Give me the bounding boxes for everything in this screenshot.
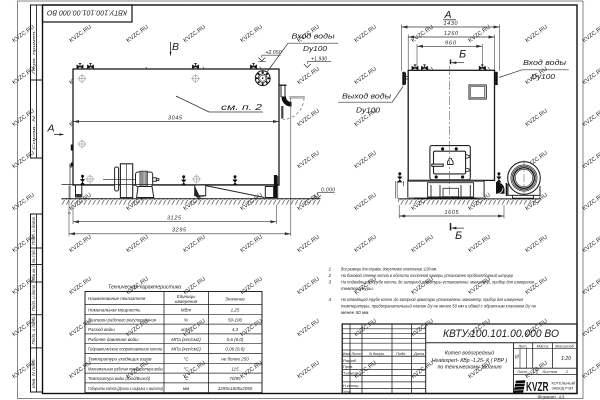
svg-text:Подп. и дата: Подп. и дата [31,284,36,311]
svg-text:Heatexpert- КВр -1,25- К ( РВР: Heatexpert- КВр -1,25- К ( РВР ) [432,358,508,364]
svg-text:На отводящей трубе котла ,до з: На отводящей трубе котла ,до запорной ар… [341,296,523,302]
svg-text:°С: °С [183,376,189,381]
svg-text:А3: А3 [558,395,565,400]
svg-text:Разраб.: Разраб. [343,358,357,363]
svg-text:На подводящей трубе котла, до: На подводящей трубе котла, до запорной а… [341,279,534,285]
svg-text:Утв.: Утв. [343,389,352,394]
svg-text:Подп.: Подп. [396,351,406,356]
svg-text:температуры, предохранительный: температуры, предохранительный клапан Dу… [341,303,536,309]
svg-text:Котел водогрейный: Котел водогрейный [445,350,494,357]
svg-text:Температура уходящих газов: Температура уходящих газов [88,357,152,362]
svg-text:КВТУ.100.101.00.000 ВО: КВТУ.100.101.00.000 ВО [443,328,559,340]
svg-text:3295: 3295 [172,227,187,233]
svg-text:Инв. N подл.: Инв. N подл. [31,358,36,388]
svg-text:3045: 3045 [168,116,183,122]
svg-text:50-100: 50-100 [228,317,243,322]
svg-text:0,06 (0,6): 0,06 (0,6) [225,347,245,352]
svg-text:МВт: МВт [181,308,192,313]
svg-text:И: И [515,355,519,361]
svg-text:1,25: 1,25 [231,308,240,313]
svg-text:Dy100: Dy100 [303,46,327,53]
svg-text:0,6 (6,0): 0,6 (6,0) [227,337,244,342]
svg-text:%: % [184,317,188,322]
svg-text:м3/ч: м3/ч [181,327,191,332]
svg-text:см. п. 2: см. п. 2 [221,103,263,112]
svg-text:Т.контр.: Т.контр. [343,370,359,375]
svg-text:В: В [172,41,179,53]
svg-text:Перв. примен.: Перв. примен. [31,30,36,74]
svg-text:мм: мм [183,386,189,391]
svg-text:Значение: Значение [225,297,245,302]
svg-text:Все размеры для справок, допус: Все размеры для справок, допустимое откл… [341,267,437,272]
svg-text:Дата: Дата [413,351,425,356]
svg-text:3295х1605х2050: 3295х1605х2050 [218,386,253,391]
svg-text:Лист: Лист [351,351,363,356]
svg-text:°С: °С [183,366,189,371]
svg-text:4,3: 4,3 [232,327,239,332]
svg-text:А: А [444,9,452,21]
svg-text:70/95: 70/95 [229,376,241,381]
svg-text:Изм.: Изм. [343,351,351,356]
svg-text:1: 1 [329,267,332,272]
svg-text:Б: Б [455,230,462,242]
svg-text:Лист: Лист [516,369,528,374]
svg-text:3125: 3125 [167,215,182,221]
svg-text:А: А [47,123,55,135]
svg-text:1:20: 1:20 [561,356,571,362]
svg-text:измерения: измерения [175,299,198,304]
svg-text:МПа (кгс/см2): МПа (кгс/см2) [171,347,201,352]
svg-text:Техническая характеристика: Техническая характеристика [108,285,181,291]
svg-text:KVZR: KVZR [526,380,549,394]
svg-text:960: 960 [445,40,456,46]
svg-text:4: 4 [329,297,332,302]
svg-text:менее 50 мм.: менее 50 мм. [341,310,370,315]
svg-text:Наименование показателя: Наименование показателя [88,296,146,301]
svg-text:Подп. и дата: Подп. и дата [31,216,36,245]
svg-text:Масса: Масса [537,343,550,348]
svg-text:температуры.: температуры. [341,286,374,291]
svg-text:Вход воды: Вход воды [292,33,336,41]
svg-text:МПа (кгс/см2): МПа (кгс/см2) [171,337,201,342]
svg-text:Dy100: Dy100 [356,108,380,115]
svg-text:Расход воды: Расход воды [88,327,115,332]
svg-text:115: 115 [231,366,239,371]
svg-text:КВТУ.100.101.00.000 ВО: КВТУ.100.101.00.000 ВО [47,9,127,18]
svg-text:Лит.: Лит. [517,343,527,348]
svg-text:Номинальная мощность: Номинальная мощность [88,308,141,313]
svg-text:Dy100: Dy100 [531,74,555,81]
svg-text:Масштаб: Масштаб [555,343,574,348]
svg-text:Температура воды (Вход/Выход): Температура воды (Вход/Выход) [88,376,150,381]
svg-text:не более 250: не более 250 [221,357,249,362]
svg-text:Б: Б [459,49,466,61]
svg-text:ЗАВОД РЭП: ЗАВОД РЭП [552,387,574,391]
svg-text:Пров.: Пров. [343,364,353,369]
svg-text:Вход воды: Вход воды [523,59,567,67]
svg-text:Гидравлическое сопротивление к: Гидравлическое сопротивление котла [88,347,162,352]
svg-text:2: 2 [328,273,332,278]
svg-text:Рабочее давление воды: Рабочее давление воды [88,337,139,342]
svg-text:N докум.: N докум. [369,351,385,356]
svg-text:Выход воды: Выход воды [342,93,392,101]
svg-text:КОТЕЛЬНЫЙ: КОТЕЛЬНЫЙ [552,382,576,386]
svg-text:На боковой стенке котла в обла: На боковой стенке котла в области топочн… [341,272,513,278]
svg-text:Инв. N дубл.: Инв. N дубл. [31,249,36,263]
svg-text:Диапазон рабочего регулировани: Диапазон рабочего регулирования [87,317,156,322]
svg-text:Н.контр.: Н.контр. [343,383,359,388]
svg-text:Листов: Листов [542,369,558,374]
svg-text:по техническому заданию: по техническому заданию [437,365,501,371]
svg-text:1605: 1605 [445,210,460,216]
svg-text:3: 3 [329,280,332,285]
svg-text:1430: 1430 [444,21,458,27]
svg-text:Максимальная рабочая температу: Максимальная рабочая температура воды [88,366,164,371]
svg-text:Формат: Формат [538,395,556,400]
svg-text:1: 1 [532,369,534,374]
svg-text:Габариты котла (Длина х ширина: Габариты котла (Длина х ширина х высота) [88,386,163,391]
svg-text:Справ. N: Справ. N [31,116,36,150]
svg-text:Взам. инв. N: Взам. инв. N [31,265,36,281]
svg-text:°С: °С [183,357,189,362]
svg-text:1260: 1260 [444,31,458,37]
svg-text:Подп. и дата: Подп. и дата [31,316,36,345]
